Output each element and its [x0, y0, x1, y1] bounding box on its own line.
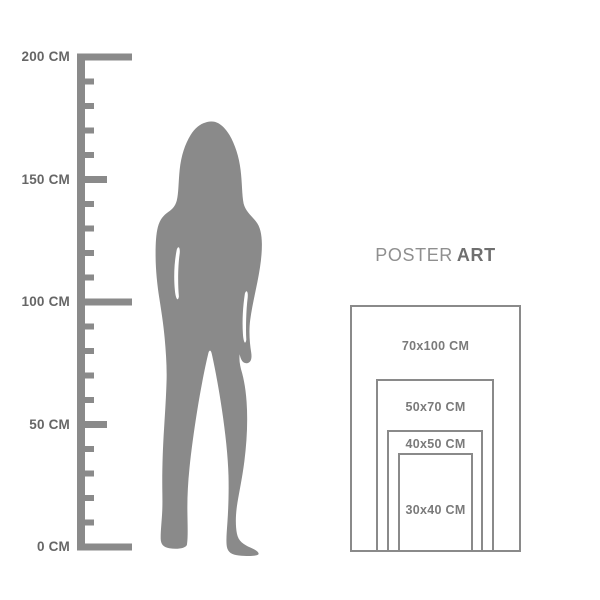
brand-name-bold: ART — [457, 245, 496, 265]
poster-size-label-50x70: 50x70 CM — [350, 399, 521, 415]
ruler-label-200cm: 200 CM — [0, 48, 70, 66]
brand-logo: POSTERART — [350, 244, 521, 266]
ruler-label-150cm: 150 CM — [0, 171, 70, 189]
height-ruler-icon — [77, 54, 132, 551]
woman-silhouette-icon — [156, 121, 262, 556]
poster-size-guide: 200 CM 150 CM 100 CM 50 CM 0 CM POSTERAR… — [0, 0, 600, 600]
ruler-label-100cm: 100 CM — [0, 293, 70, 311]
poster-size-label-70x100: 70x100 CM — [350, 338, 521, 354]
ruler-label-0cm: 0 CM — [0, 538, 70, 556]
poster-size-label-30x40: 30x40 CM — [350, 502, 521, 518]
poster-size-label-40x50: 40x50 CM — [350, 436, 521, 452]
ruler-label-50cm: 50 CM — [0, 416, 70, 434]
brand-name-regular: POSTER — [375, 245, 453, 265]
